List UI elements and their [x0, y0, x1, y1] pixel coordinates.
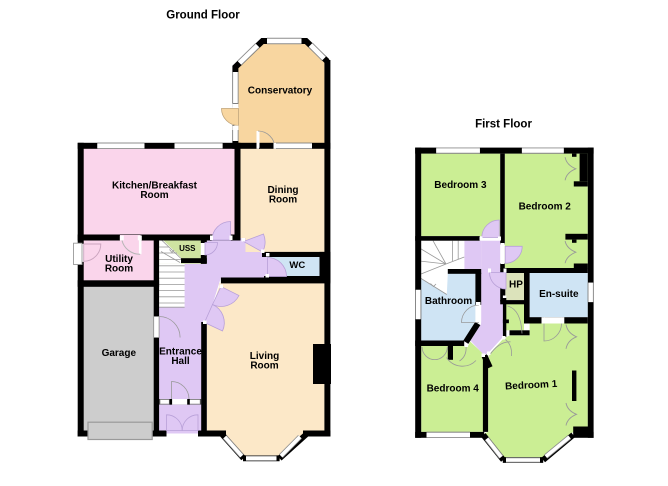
svg-text:Bedroom 4: Bedroom 4 [427, 383, 480, 394]
svg-text:Room: Room [269, 195, 297, 206]
svg-text:Conservatory: Conservatory [248, 86, 313, 97]
svg-text:Ground Floor: Ground Floor [166, 10, 240, 22]
svg-text:Garage: Garage [102, 348, 137, 359]
svg-text:Room: Room [250, 360, 278, 371]
svg-text:First Floor: First Floor [475, 119, 532, 131]
svg-text:Bedroom 3: Bedroom 3 [434, 180, 487, 191]
svg-text:Bedroom 2: Bedroom 2 [519, 201, 572, 212]
svg-text:WC: WC [289, 260, 305, 271]
svg-text:Hall: Hall [171, 356, 190, 367]
svg-text:Bathroom: Bathroom [425, 296, 472, 307]
svg-text:USS: USS [179, 244, 196, 253]
svg-text:HP: HP [509, 279, 523, 290]
svg-text:Room: Room [140, 190, 168, 201]
svg-text:Room: Room [105, 263, 133, 274]
svg-text:En-suite: En-suite [539, 289, 579, 300]
